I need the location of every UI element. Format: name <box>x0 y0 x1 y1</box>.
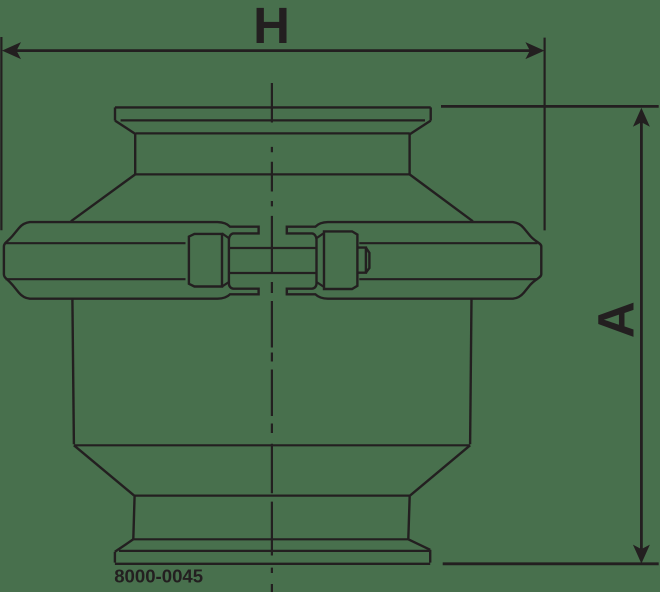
svg-text:A: A <box>588 301 645 338</box>
svg-text:H: H <box>253 0 290 54</box>
svg-text:8000-0045: 8000-0045 <box>114 566 203 587</box>
